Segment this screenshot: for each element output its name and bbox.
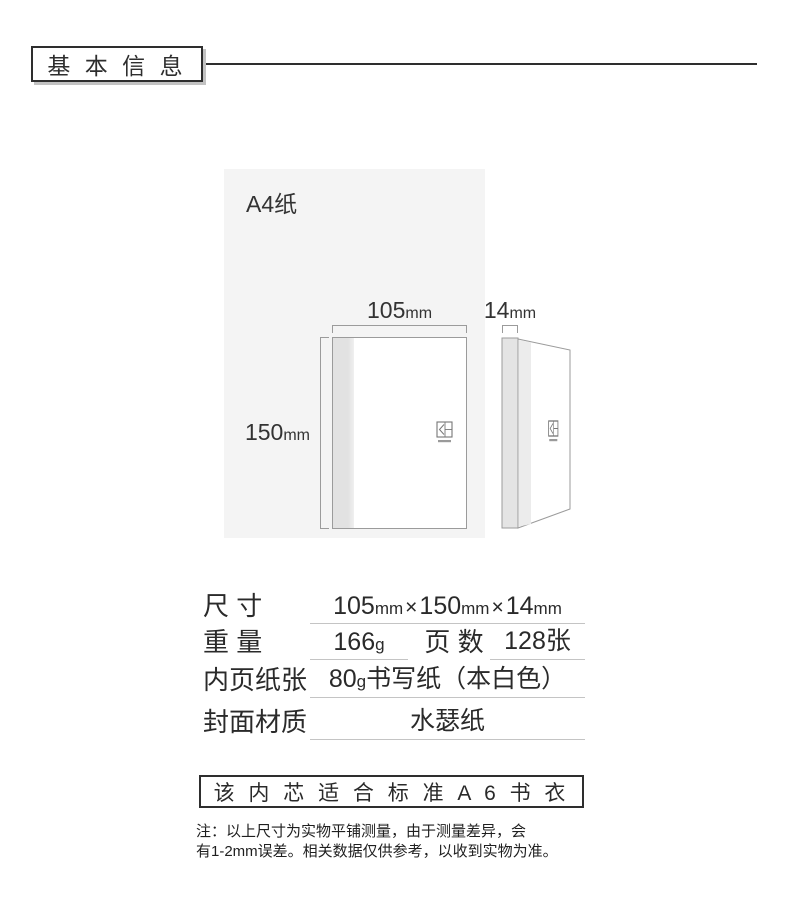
height-dimension-value: 150 — [245, 419, 283, 445]
notebook-side-view — [501, 335, 577, 532]
spec-value-size: 105mm×150mm×14mm — [310, 592, 585, 624]
width-bracket — [332, 325, 467, 333]
spec-value-pages: 128张 — [490, 621, 585, 660]
spec-value-paper: 80g书写纸（本白色） — [310, 659, 585, 698]
spec-label-pages: 页 数 — [418, 622, 490, 660]
height-dimension-label: 150mm — [230, 419, 310, 446]
spine-strip — [333, 338, 354, 528]
section-title: 基 本 信 息 — [47, 47, 186, 81]
height-dimension-unit: mm — [283, 427, 310, 444]
a4-paper-label: A4纸 — [246, 185, 297, 219]
size-n2: 150 — [419, 592, 461, 620]
spec-row-weight-pages: 重 量 166g 页 数 128张 — [196, 624, 585, 660]
spec-row-size: 尺 寸 105mm×150mm×14mm — [196, 586, 585, 624]
side-spine — [502, 338, 518, 528]
depth-dimension-label: 14mm — [480, 297, 540, 324]
footnote: 注：以上尺寸为实物平铺测量，由于测量差异，会 有1-2mm误差。相关数据仅供参考… — [196, 822, 606, 862]
height-bracket — [320, 337, 329, 529]
spec-value-cover: 水瑟纸 — [310, 701, 585, 740]
size-u1: mm — [375, 599, 403, 618]
specs-table: 尺 寸 105mm×150mm×14mm 重 量 166g 页 数 128张 内… — [196, 586, 585, 740]
paper-rest: 书写纸（本白色） — [366, 665, 566, 693]
depth-dimension-value: 14 — [484, 297, 510, 323]
spec-row-cover: 封面材质 水瑟纸 — [196, 698, 585, 740]
depth-dimension-unit: mm — [509, 305, 536, 322]
size-x2: × — [491, 596, 503, 619]
section-divider-line — [203, 63, 757, 65]
spec-label-weight: 重 量 — [196, 622, 306, 660]
pages-value: 128张 — [504, 627, 571, 655]
footnote-line1: 注：以上尺寸为实物平铺测量，由于测量差异，会 — [196, 822, 606, 842]
size-n3: 14 — [506, 592, 534, 620]
width-dimension-label: 105mm — [332, 297, 467, 324]
width-dimension-value: 105 — [367, 297, 405, 323]
paper-num: 80 — [329, 665, 357, 693]
weight-unit: g — [375, 635, 384, 654]
spec-row-paper: 内页纸张 80g书写纸（本白色） — [196, 660, 585, 698]
section-title-box: 基 本 信 息 — [31, 46, 203, 82]
brand-logo-icon — [436, 421, 454, 445]
size-u3: mm — [534, 599, 562, 618]
cover-value: 水瑟纸 — [410, 707, 485, 735]
notebook-front-view — [332, 337, 467, 529]
spec-label-cover: 封面材质 — [196, 702, 306, 740]
paper-unit: g — [357, 672, 366, 691]
size-n1: 105 — [333, 592, 375, 620]
spec-label-paper: 内页纸张 — [196, 660, 306, 698]
spec-label-size: 尺 寸 — [196, 586, 306, 624]
width-dimension-unit: mm — [405, 305, 432, 322]
fit-note-text: 该 内 芯 适 合 标 准 A 6 书 衣 — [214, 777, 570, 807]
weight-num: 166 — [333, 628, 375, 656]
side-cover-shade — [519, 340, 531, 527]
depth-bracket — [502, 325, 518, 333]
size-x1: × — [405, 596, 417, 619]
product-info-page: 基 本 信 息 A4纸 105mm 150mm 14mm — [0, 0, 790, 916]
footnote-line2: 有1-2mm误差。相关数据仅供参考，以收到实物为准。 — [196, 842, 606, 862]
spec-value-weight: 166g — [310, 628, 408, 660]
fit-note-box: 该 内 芯 适 合 标 准 A 6 书 衣 — [199, 775, 584, 808]
size-u2: mm — [461, 599, 489, 618]
